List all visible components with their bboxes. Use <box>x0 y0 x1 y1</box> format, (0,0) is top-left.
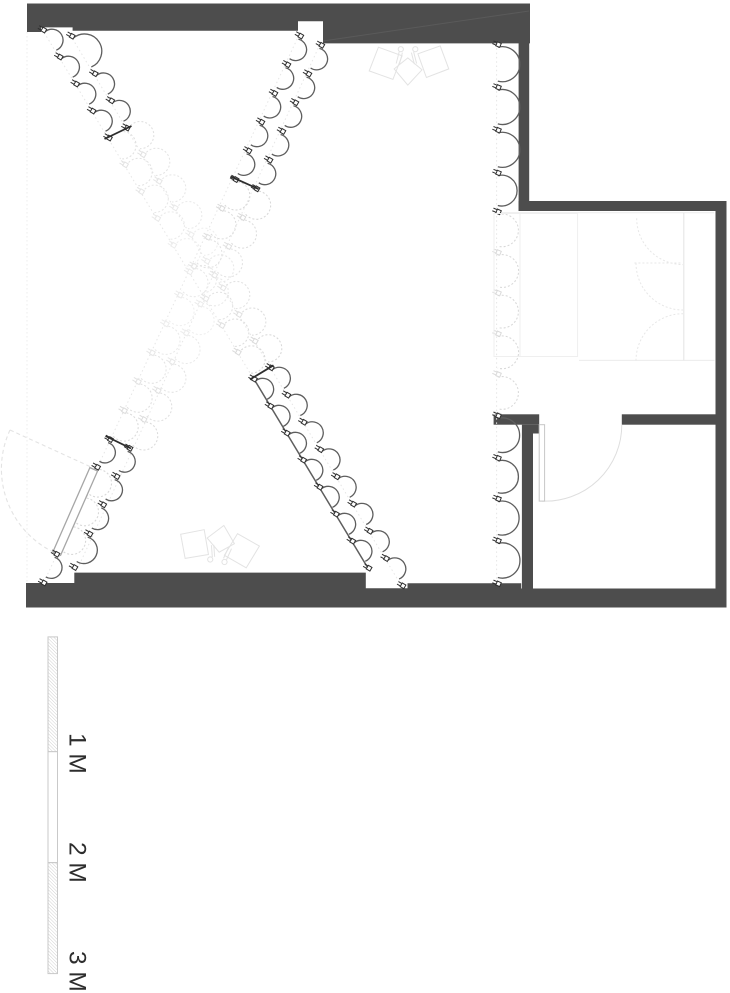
svg-text:1 M: 1 M <box>64 733 91 774</box>
svg-text:3 M: 3 M <box>64 951 91 992</box>
svg-text:2 M: 2 M <box>64 842 91 883</box>
